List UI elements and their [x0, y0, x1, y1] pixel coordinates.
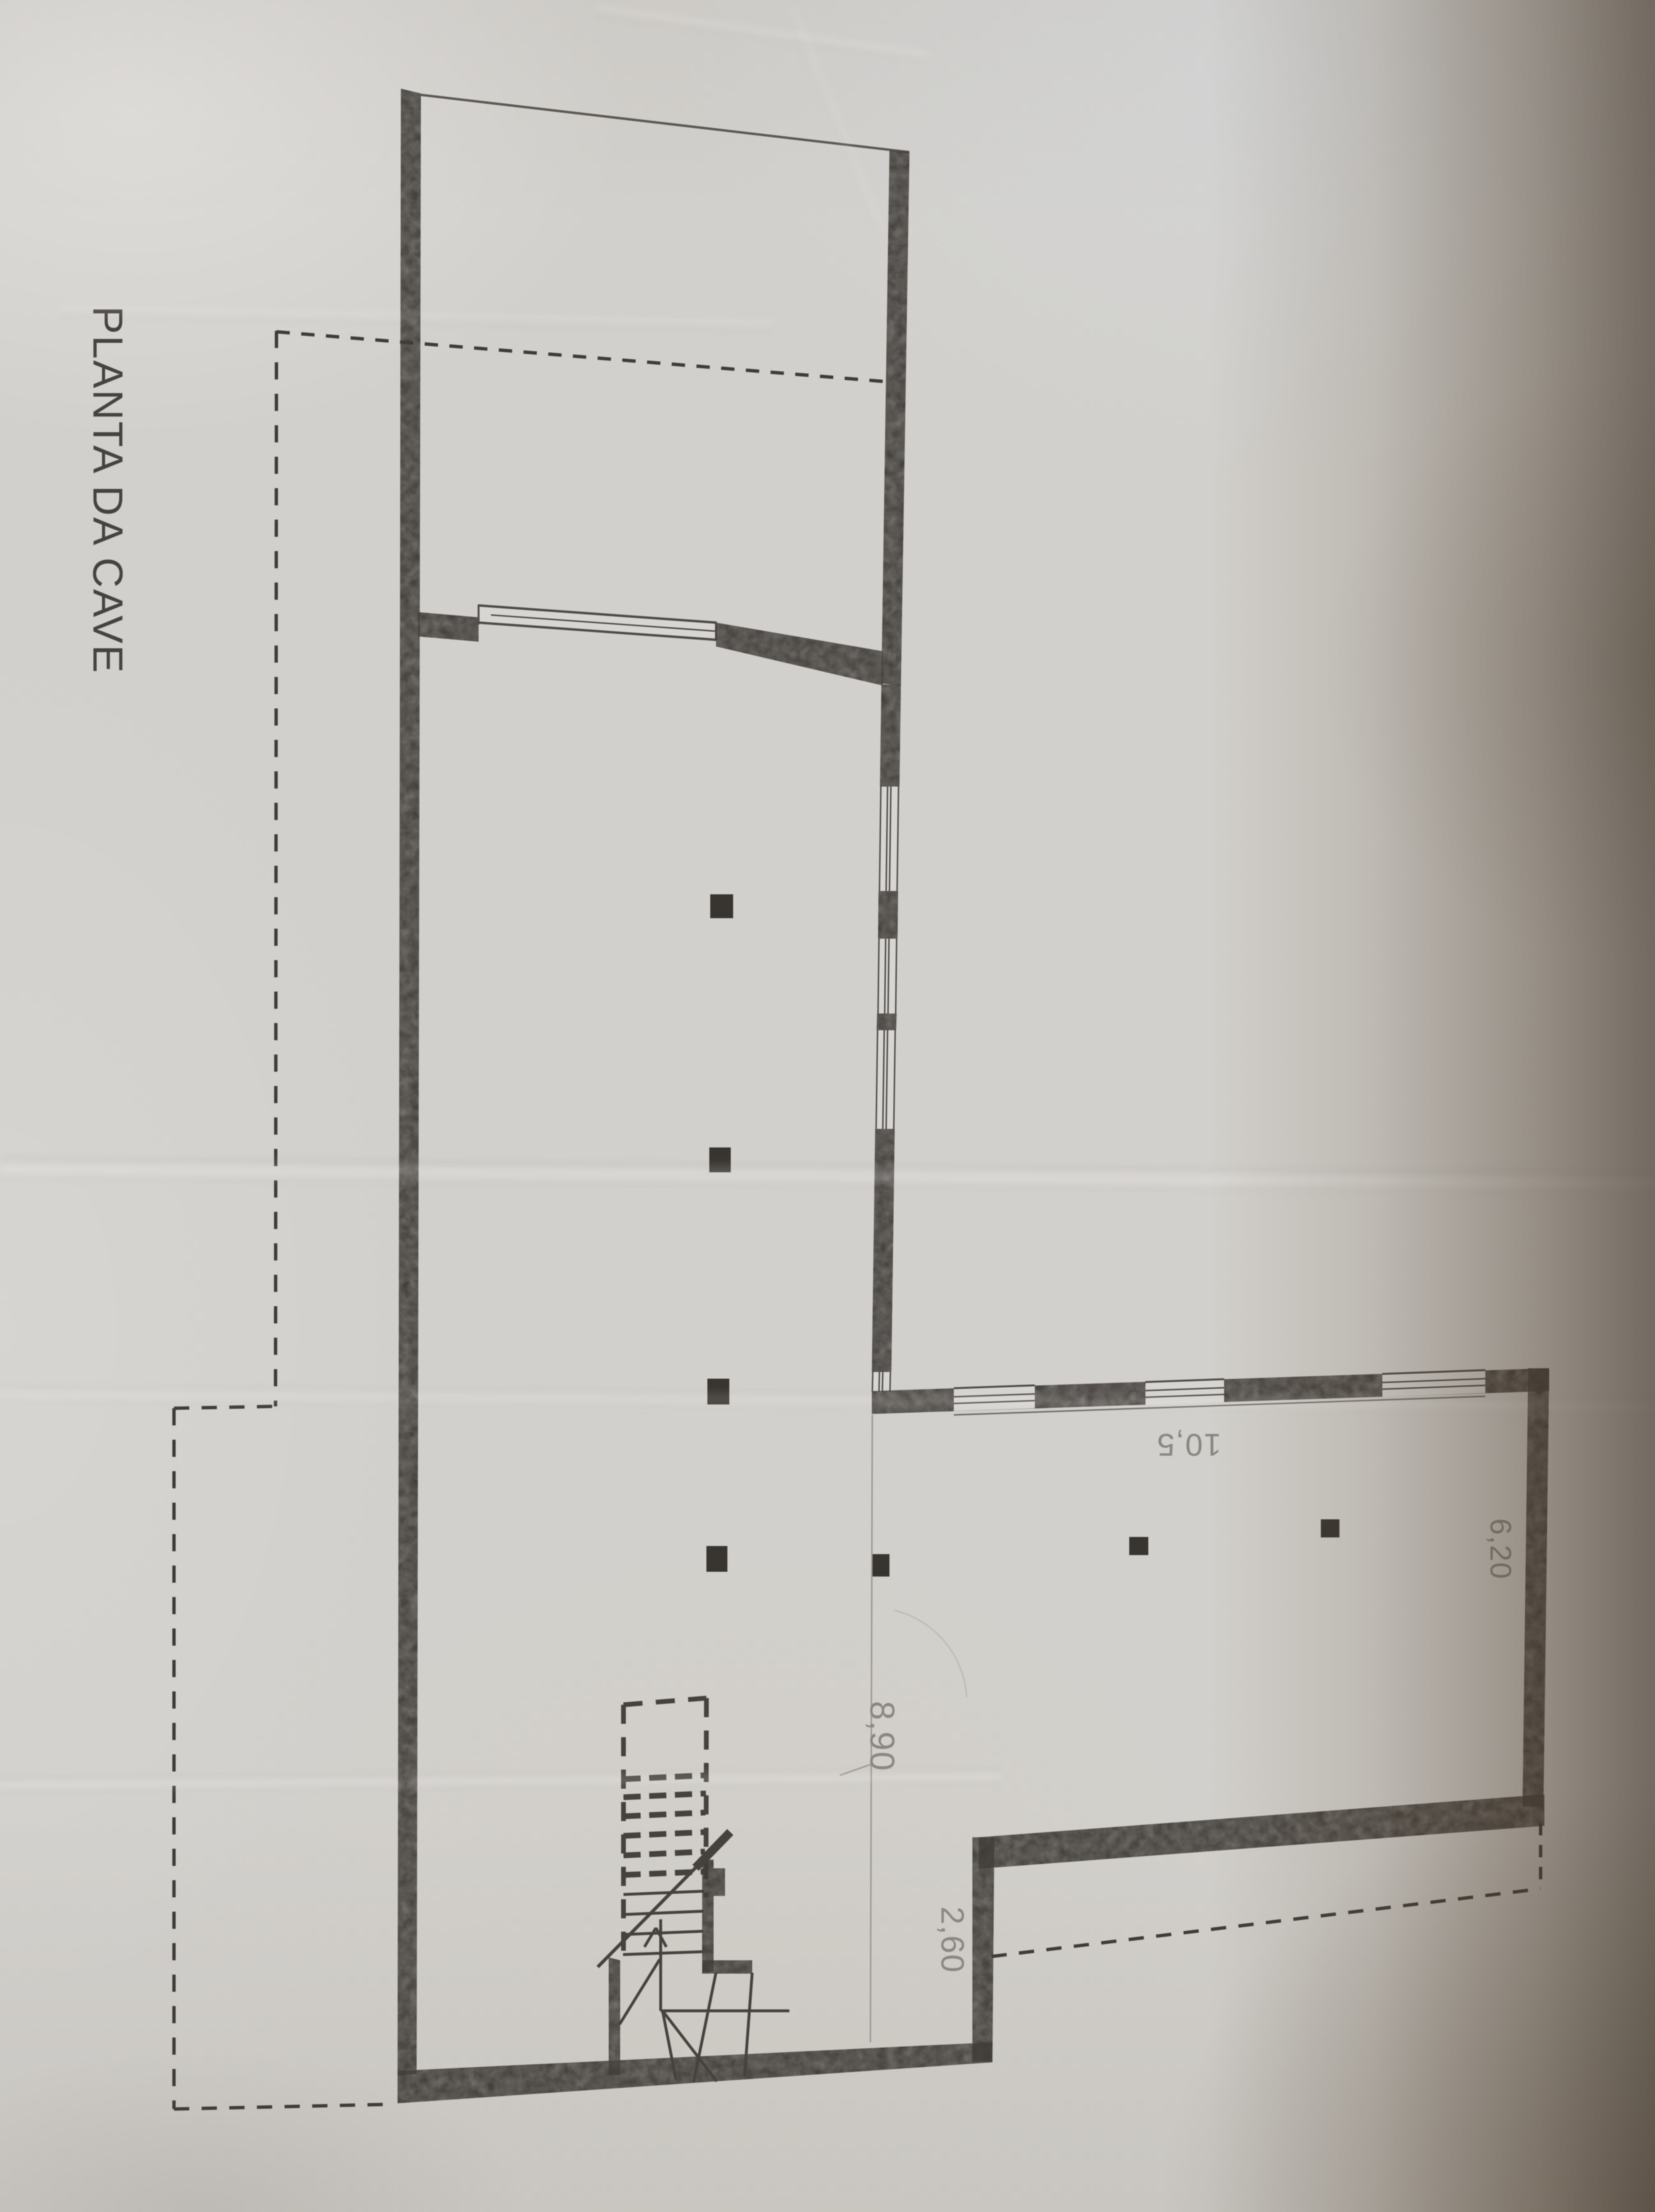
svg-text:PLANTA DA CAVE: PLANTA DA CAVE: [84, 306, 132, 674]
svg-text:8,90: 8,90: [863, 1701, 901, 1772]
svg-text:2,60: 2,60: [934, 1906, 971, 1973]
svg-text:6,20: 6,20: [1484, 1518, 1517, 1580]
svg-text:10,5: 10,5: [1156, 1427, 1221, 1463]
